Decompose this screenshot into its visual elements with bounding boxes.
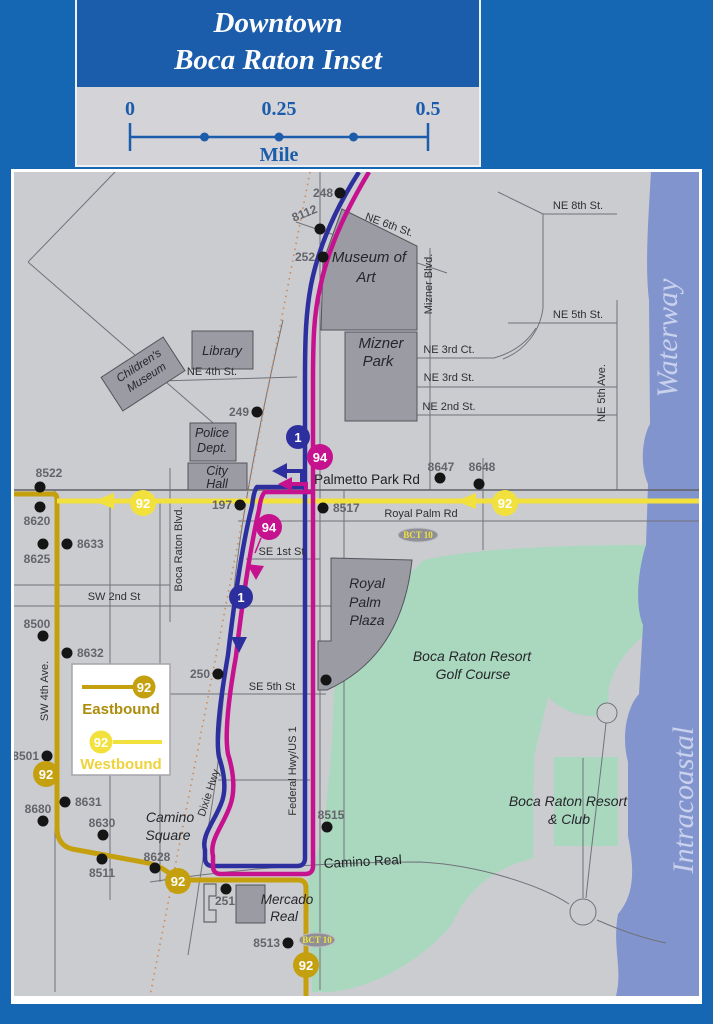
place-label-mercado-real: Mercado xyxy=(261,892,314,907)
title-line-1: Downtown xyxy=(77,5,479,42)
street-label-ne-5th: NE 5th St. xyxy=(553,309,603,321)
bus-stop-dot xyxy=(213,669,224,680)
street-label-mizner-blvd: Mizner Blvd. xyxy=(423,254,435,315)
place-label-police-dept: Dept. xyxy=(197,441,227,455)
street-label-ne-8th: NE 8th St. xyxy=(553,200,603,212)
bus-stop-dot xyxy=(38,816,49,827)
map-border: 248 8112 252 249 8522 8620 8625 8633 197… xyxy=(11,169,702,1004)
bus-stop-dot xyxy=(62,539,73,550)
title-box: Downtown Boca Raton Inset 0 0.25 0.5 Mil… xyxy=(75,0,481,167)
street-label-federal-hwy: Federal Hwy/US 1 xyxy=(287,726,299,815)
route-94-badge-label: 94 xyxy=(262,520,277,535)
bus-stop-label: 8515 xyxy=(318,808,345,822)
bus-stop-dot xyxy=(335,188,346,199)
scale-dot xyxy=(349,133,358,142)
legend-westbound-label: Westbound xyxy=(80,756,161,773)
bus-stop-dot xyxy=(322,822,333,833)
street-label-palmetto-park: Palmetto Park Rd xyxy=(314,472,420,487)
bus-stop-label: 8648 xyxy=(469,460,496,474)
place-label-resort-club: & Club xyxy=(548,811,590,827)
bct-10-badge-label: BCT 10 xyxy=(302,935,332,945)
bus-stop-label: 251 xyxy=(215,894,235,908)
bus-stop-label: 8633 xyxy=(77,537,104,551)
place-label-police-dept: Police xyxy=(195,426,229,440)
street-label-sw-2nd: SW 2nd St xyxy=(88,591,141,603)
water-label-intracoastal: Intracoastal xyxy=(667,727,699,875)
bus-stop-dot xyxy=(315,224,326,235)
scale-tick-025: 0.25 xyxy=(262,98,297,120)
scale-dot xyxy=(275,133,284,142)
place-label-mizner-park: Park xyxy=(363,353,395,370)
route-92-badge-label: 92 xyxy=(299,958,313,973)
bus-stop-dot xyxy=(97,854,108,865)
bus-stop-dot xyxy=(38,539,49,550)
street-label-ne-5th-ave: NE 5th Ave. xyxy=(596,364,608,422)
place-label-camino-square: Camino xyxy=(146,809,194,825)
bus-stop-label: 8628 xyxy=(144,850,171,864)
place-label-mizner-park: Mizner xyxy=(358,335,404,352)
route-1-badge-label: 1 xyxy=(294,430,301,445)
street-label-ne-3rd-ct: NE 3rd Ct. xyxy=(423,344,474,356)
street-label-ne-2nd: NE 2nd St. xyxy=(422,401,475,413)
scale-dot xyxy=(200,133,209,142)
bus-stop-dot xyxy=(283,938,294,949)
place-label-resort-club: Boca Raton Resort xyxy=(509,793,628,809)
bus-stop-label: 8620 xyxy=(24,514,51,528)
bus-stop-label: 197 xyxy=(212,498,232,512)
bus-stop-dot xyxy=(435,473,446,484)
bus-stop-label: 250 xyxy=(190,667,210,681)
bus-stop-label: 8631 xyxy=(75,795,102,809)
legend-eastbound-badge-label: 92 xyxy=(137,680,151,695)
place-label-library: Library xyxy=(202,343,243,358)
street-label-boca-raton-blvd: Boca Raton Blvd. xyxy=(173,507,185,592)
bus-stop-label: 252 xyxy=(295,250,315,264)
bus-stop-dot xyxy=(60,797,71,808)
bus-stop-dot xyxy=(42,751,53,762)
route-92-badge-label: 92 xyxy=(171,874,185,889)
street-label-sw-4th-ave: SW 4th Ave. xyxy=(39,661,51,721)
route-94-badge-label: 94 xyxy=(313,450,328,465)
bus-stop-dot xyxy=(150,863,161,874)
place-label-royal-palm-plaza: Royal xyxy=(349,575,386,591)
street-label-ne-4th: NE 4th St. xyxy=(187,366,237,378)
bus-stop-label: 8680 xyxy=(25,802,52,816)
map-title: Downtown Boca Raton Inset xyxy=(77,0,479,87)
street-label-ne-3rd: NE 3rd St. xyxy=(424,372,475,384)
legend-eastbound-label: Eastbound xyxy=(82,701,160,718)
bus-stop-dot xyxy=(35,502,46,513)
place-label-camino-square: Square xyxy=(145,827,190,843)
map: 248 8112 252 249 8522 8620 8625 8633 197… xyxy=(14,172,699,996)
route-92-badge-label: 92 xyxy=(498,496,512,511)
page: { "title": {"line1": "Downtown", "line2"… xyxy=(0,0,713,1024)
bus-stop-dot xyxy=(38,631,49,642)
bus-stop-dot xyxy=(252,407,263,418)
bus-stop-dot xyxy=(98,830,109,841)
scale-unit: Mile xyxy=(260,144,299,165)
bct-10-badge-label: BCT 10 xyxy=(403,530,433,540)
bus-stop-dot xyxy=(321,675,332,686)
bus-stop-label: 8517 xyxy=(333,501,360,515)
bus-stop-label: 8625 xyxy=(24,552,51,566)
place-label-royal-palm-plaza: Palm xyxy=(349,594,381,610)
bus-stop-label: 8632 xyxy=(77,646,104,660)
roundabout xyxy=(597,703,617,723)
bus-stop-label: 8647 xyxy=(428,460,455,474)
place-label-golf-course: Golf Course xyxy=(436,666,511,682)
bus-stop-dot xyxy=(318,503,329,514)
route-92-badge-label: 92 xyxy=(39,767,53,782)
bus-stop-dot xyxy=(318,252,329,263)
place-label-city-hall: Hall xyxy=(206,477,229,491)
bus-stop-dot xyxy=(235,500,246,511)
place-label-mercado-real: Real xyxy=(270,909,299,924)
place-label-museum-of-art: Art xyxy=(355,269,376,286)
street-label-se-1st: SE 1st St. xyxy=(259,546,308,558)
scale-bar-graphic: 0 0.25 0.5 Mile xyxy=(77,87,479,165)
street-label-royal-palm: Royal Palm Rd xyxy=(384,508,457,520)
place-label-royal-palm-plaza: Plaza xyxy=(349,612,384,628)
place-label-museum-of-art: Museum of xyxy=(332,249,408,266)
bus-stop-label: 8513 xyxy=(253,936,280,950)
bus-stop-label: 8500 xyxy=(24,617,51,631)
route-92-badge-label: 92 xyxy=(136,496,150,511)
bus-stop-label: 8501 xyxy=(14,749,39,763)
scale-bar: 0 0.25 0.5 Mile xyxy=(77,87,479,165)
scale-tick-0: 0 xyxy=(125,98,135,120)
route-1-badge-label: 1 xyxy=(237,590,244,605)
title-line-2: Boca Raton Inset xyxy=(77,42,479,79)
bus-stop-dot xyxy=(35,482,46,493)
place-label-city-hall: City xyxy=(206,464,228,478)
bus-stop-label: 8511 xyxy=(89,866,115,880)
bus-stop-dot xyxy=(474,479,485,490)
bus-stop-label: 248 xyxy=(313,186,333,200)
bus-stop-dot xyxy=(62,648,73,659)
route-92-legend: 92 Eastbound 92 Westbound xyxy=(72,664,170,775)
legend-westbound-badge-label: 92 xyxy=(94,735,108,750)
bus-stop-label: 249 xyxy=(229,405,249,419)
scale-tick-05: 0.5 xyxy=(416,98,441,120)
street-label-se-5th: SE 5th St xyxy=(249,681,295,693)
bus-stop-label: 8522 xyxy=(36,466,63,480)
bus-stop-dot xyxy=(221,884,232,895)
place-label-golf-course: Boca Raton Resort xyxy=(413,648,532,664)
water-label-waterway: Waterway xyxy=(651,278,684,398)
roundabout xyxy=(570,899,596,925)
map-frame: Downtown Boca Raton Inset 0 0.25 0.5 Mil… xyxy=(0,0,713,1024)
bus-stop-label: 8630 xyxy=(89,816,116,830)
